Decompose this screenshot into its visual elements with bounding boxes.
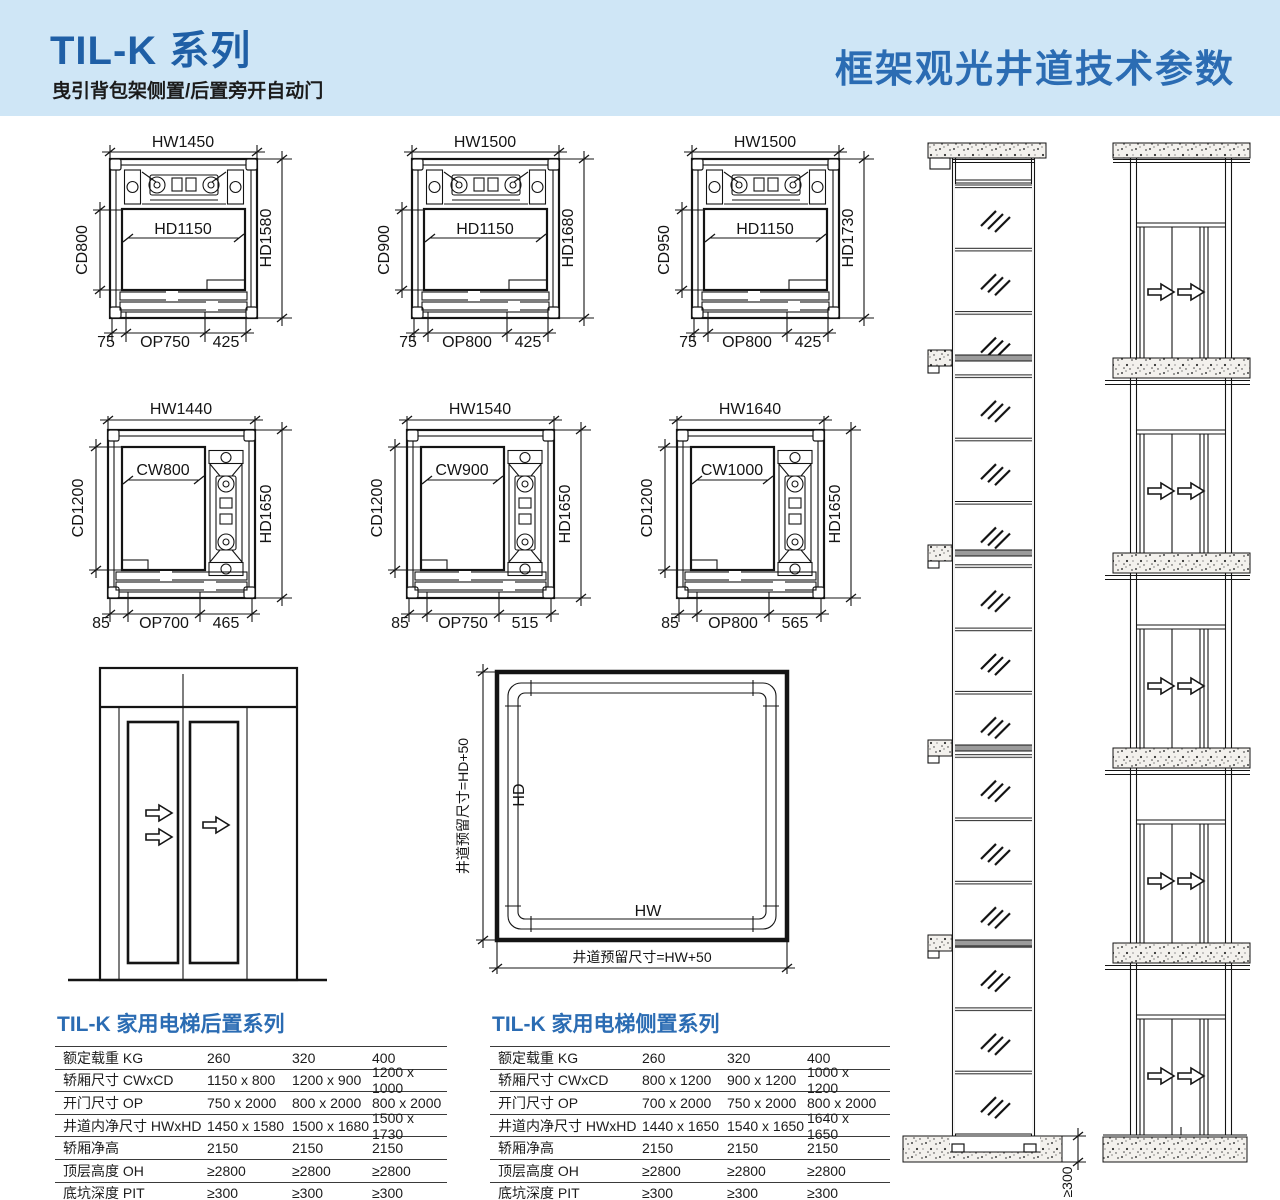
row-value: 1200 x 900 [292,1072,372,1088]
car-depth-label: HD1150 [456,221,514,238]
row-label: 开门尺寸 OP [490,1093,642,1113]
table-title-rear-series: TIL-K 家用电梯后置系列 [57,1008,284,1038]
row-value: 260 [642,1050,727,1066]
plan-hd-label: HD [511,783,528,806]
dim-hw: HW1500 [734,134,796,151]
dim-hd: HD1580 [258,209,275,268]
cross-section-3: HD1150 HW1500 CD950 HD1730 75 OP800 425 [656,134,874,351]
page-subtitle: 曳引背包架侧置/后置旁开自动门 [52,76,323,103]
table-row: 井道内净尺寸 HWxHD1440 x 16501540 x 16501640 x… [490,1114,890,1137]
table-row: 轿厢净高215021502150 [490,1136,890,1159]
row-label: 底坑深度 PIT [55,1183,207,1200]
row-value: 800 x 2000 [372,1095,447,1111]
row-value: 2150 [727,1140,807,1156]
row-value: 320 [292,1050,372,1066]
row-value: 1450 x 1580 [207,1118,292,1134]
row-value: 260 [207,1050,292,1066]
cross-section-1: HD1150 HW1450 CD800 HD1580 75 OP750 425 [74,134,292,351]
table-row: 轿厢尺寸 CWxCD1150 x 8001200 x 9001200 x 100… [55,1069,447,1092]
row-value: 2150 [292,1140,372,1156]
row-value: ≥300 [207,1185,292,1200]
row-value: ≥300 [642,1185,727,1200]
row-label: 顶层高度 OH [55,1161,207,1181]
row-label: 井道内净尺寸 HWxHD [55,1116,207,1136]
row-value: 750 x 2000 [207,1095,292,1111]
row-value: 800 x 1200 [642,1072,727,1088]
row-value: ≥300 [727,1185,807,1200]
table-row: 底坑深度 PIT≥300≥300≥300 [490,1182,890,1200]
dim-op: OP800 [442,334,492,351]
car-depth-label: HD1150 [154,221,212,238]
row-value: 1000 x 1200 [807,1064,882,1096]
dim-left: 75 [399,334,417,351]
dim-hd: HD1650 [827,485,844,544]
row-value: 2150 [807,1140,882,1156]
dim-cd: CD1200 [369,479,386,538]
cross-section-4: CW800 HW1440 CD1200 HD1650 85 OP700 465 [70,401,292,632]
spec-table-rear: 额定载重 KG260320400 轿厢尺寸 CWxCD1150 x 800120… [55,1046,447,1200]
row-value: ≥300 [372,1185,447,1200]
dim-left: 75 [97,334,115,351]
door-open-arrow [203,817,229,833]
row-value: 1540 x 1650 [727,1118,807,1134]
dim-cd: CD1200 [70,479,87,538]
door-open-arrow [146,805,172,821]
page-right-title: 框架观光井道技术参数 [835,38,1235,93]
door-shaft-elevation [1103,143,1250,1162]
plan-hw-label: HW [635,903,663,920]
row-value: ≥2800 [642,1163,727,1179]
dim-cd: CD1200 [639,479,656,538]
dim-right: 465 [213,615,240,632]
row-value: 2150 [207,1140,292,1156]
row-value: 2150 [642,1140,727,1156]
row-label: 顶层高度 OH [490,1161,642,1181]
row-value: 700 x 2000 [642,1095,727,1111]
dim-op: OP750 [140,334,190,351]
page-title: TIL-K 系列 [50,18,251,76]
row-value: 750 x 2000 [727,1095,807,1111]
dim-op: OP800 [708,615,758,632]
table-row: 顶层高度 OH≥2800≥2800≥2800 [490,1159,890,1182]
table-row: 顶层高度 OH≥2800≥2800≥2800 [55,1159,447,1182]
row-value: 800 x 2000 [292,1095,372,1111]
table-row: 井道内净尺寸 HWxHD1450 x 15801500 x 16801500 x… [55,1114,447,1137]
row-value: 900 x 1200 [727,1072,807,1088]
glazed-shaft-elevation: ≥300 [903,143,1086,1198]
dim-hw: HW1640 [719,401,781,418]
row-label: 底坑深度 PIT [490,1183,642,1200]
table-row: 轿厢尺寸 CWxCD800 x 1200900 x 12001000 x 120… [490,1069,890,1092]
row-value: ≥2800 [207,1163,292,1179]
dim-left: 85 [661,615,679,632]
row-value: 1200 x 1000 [372,1064,447,1096]
table-row: 轿厢净高215021502150 [55,1136,447,1159]
row-label: 井道内净尺寸 HWxHD [490,1116,642,1136]
plan-bottom-dim: 井道预留尺寸=HW+50 [572,949,711,965]
shaft-plan: HD HW 井道预留尺寸=HD+50 井道预留尺寸=HW+50 [455,664,795,974]
row-value: ≥300 [292,1185,372,1200]
dim-op: OP750 [438,615,488,632]
spec-table-side: 额定载重 KG260320400 轿厢尺寸 CWxCD800 x 1200900… [490,1046,890,1200]
cross-section-5: CW900 HW1540 CD1200 HD1650 85 OP750 515 [369,401,591,632]
row-value: 1440 x 1650 [642,1118,727,1134]
row-label: 轿厢尺寸 CWxCD [490,1070,642,1090]
dim-cd: CD800 [74,225,91,275]
dim-cd: CD900 [376,225,393,275]
row-value: 2150 [372,1140,447,1156]
row-value: 400 [807,1050,882,1066]
row-value: 400 [372,1050,447,1066]
row-value: 1640 x 1650 [807,1110,882,1142]
dim-right: 425 [213,334,240,351]
row-value: ≥2800 [292,1163,372,1179]
row-label: 额定载重 KG [490,1048,642,1068]
dim-hw: HW1440 [150,401,212,418]
dim-right: 425 [795,334,822,351]
dim-hw: HW1450 [152,134,214,151]
landing-door-elevation [68,668,327,980]
dim-hw: HW1540 [449,401,511,418]
page: TIL-K 系列 曳引背包架侧置/后置旁开自动门 框架观光井道技术参数 [0,0,1280,1200]
dim-hd: HD1650 [258,485,275,544]
dim-cd: CD950 [656,225,673,275]
dim-hd: HD1680 [560,209,577,268]
car-width-label: CW800 [136,462,189,479]
row-label: 轿厢净高 [490,1138,642,1158]
dim-right: 515 [512,615,539,632]
cross-section-2: HD1150 HW1500 CD900 HD1680 75 OP800 425 [376,134,594,351]
row-value: 1500 x 1730 [372,1110,447,1142]
car-width-label: CW900 [435,462,488,479]
row-value: 320 [727,1050,807,1066]
dim-left: 75 [679,334,697,351]
cross-section-6: CW1000 HW1640 CD1200 HD1650 85 OP800 565 [639,401,861,632]
row-value: 800 x 2000 [807,1095,882,1111]
door-open-arrow [146,829,172,845]
row-label: 额定载重 KG [55,1048,207,1068]
row-label: 开门尺寸 OP [55,1093,207,1113]
dim-right: 425 [515,334,542,351]
row-value: ≥2800 [807,1163,882,1179]
row-value: 1500 x 1680 [292,1118,372,1134]
table-row: 底坑深度 PIT≥300≥300≥300 [55,1182,447,1200]
dim-right: 565 [782,615,809,632]
dim-op: OP800 [722,334,772,351]
dim-hd: HD1650 [557,485,574,544]
plan-left-dim: 井道预留尺寸=HD+50 [455,738,471,874]
row-label: 轿厢净高 [55,1138,207,1158]
dim-hd: HD1730 [840,209,857,268]
dim-hw: HW1500 [454,134,516,151]
pit-depth-label: ≥300 [1059,1166,1075,1197]
row-value: ≥2800 [727,1163,807,1179]
dim-op: OP700 [139,615,189,632]
dim-left: 85 [92,615,110,632]
row-value: ≥2800 [372,1163,447,1179]
car-depth-label: HD1150 [736,221,794,238]
row-label: 轿厢尺寸 CWxCD [55,1070,207,1090]
car-width-label: CW1000 [701,462,763,479]
table-title-side-series: TIL-K 家用电梯侧置系列 [492,1008,719,1038]
row-value: ≥300 [807,1185,882,1200]
row-value: 1150 x 800 [207,1072,292,1088]
dim-left: 85 [391,615,409,632]
